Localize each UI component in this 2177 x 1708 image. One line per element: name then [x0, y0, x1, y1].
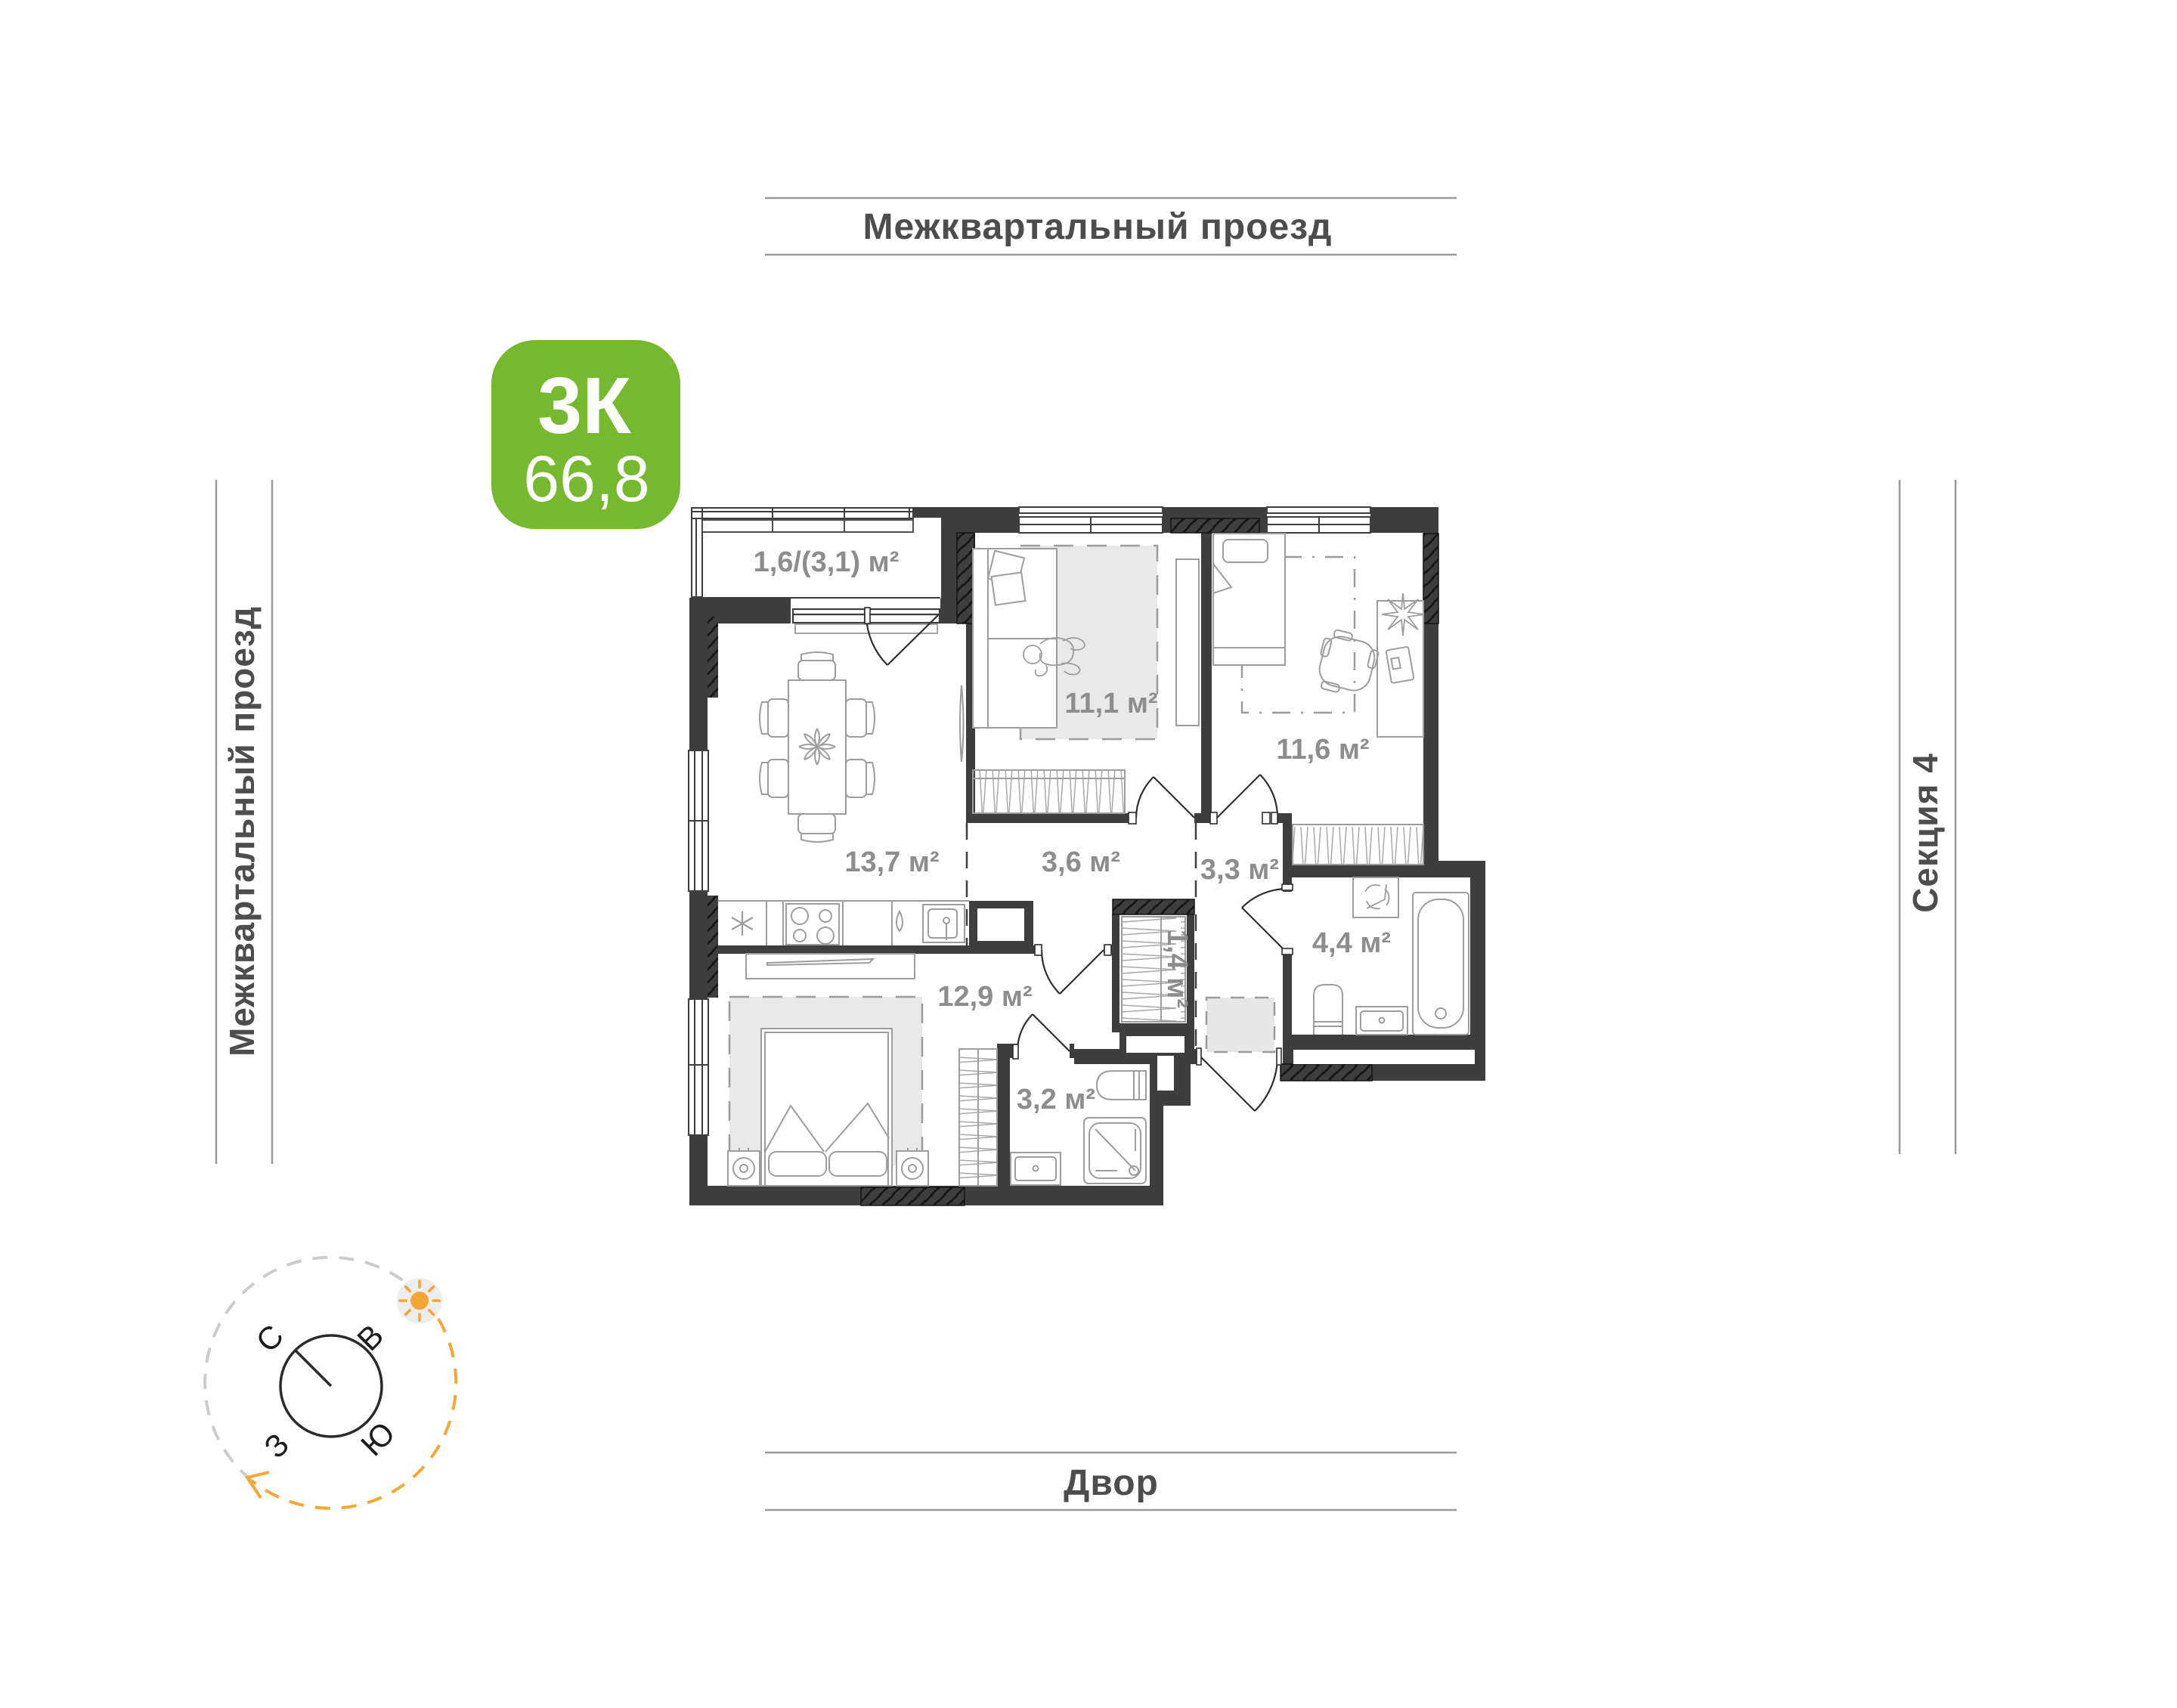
svg-text:Секция 4: Секция 4 [1906, 753, 1945, 913]
svg-text:4,4 м²: 4,4 м² [1312, 927, 1391, 959]
svg-text:3,3 м²: 3,3 м² [1200, 854, 1279, 886]
svg-text:1,6/(3,1) м²: 1,6/(3,1) м² [754, 546, 900, 578]
svg-text:Межквартальный проезд: Межквартальный проезд [862, 207, 1332, 247]
svg-text:Двор: Двор [1064, 1463, 1159, 1503]
svg-text:3К: 3К [537, 361, 631, 450]
svg-text:13,7 м²: 13,7 м² [844, 846, 939, 878]
svg-text:Межквартальный проезд: Межквартальный проезд [222, 606, 262, 1057]
svg-text:11,6 м²: 11,6 м² [1276, 734, 1369, 766]
svg-text:12,9 м²: 12,9 м² [937, 981, 1032, 1013]
svg-text:66,8: 66,8 [523, 443, 649, 515]
svg-text:11,1 м²: 11,1 м² [1064, 688, 1157, 719]
svg-text:1,4 м²: 1,4 м² [1161, 930, 1193, 1008]
svg-text:3,2 м²: 3,2 м² [1017, 1084, 1095, 1115]
svg-text:3,6 м²: 3,6 м² [1042, 846, 1120, 878]
